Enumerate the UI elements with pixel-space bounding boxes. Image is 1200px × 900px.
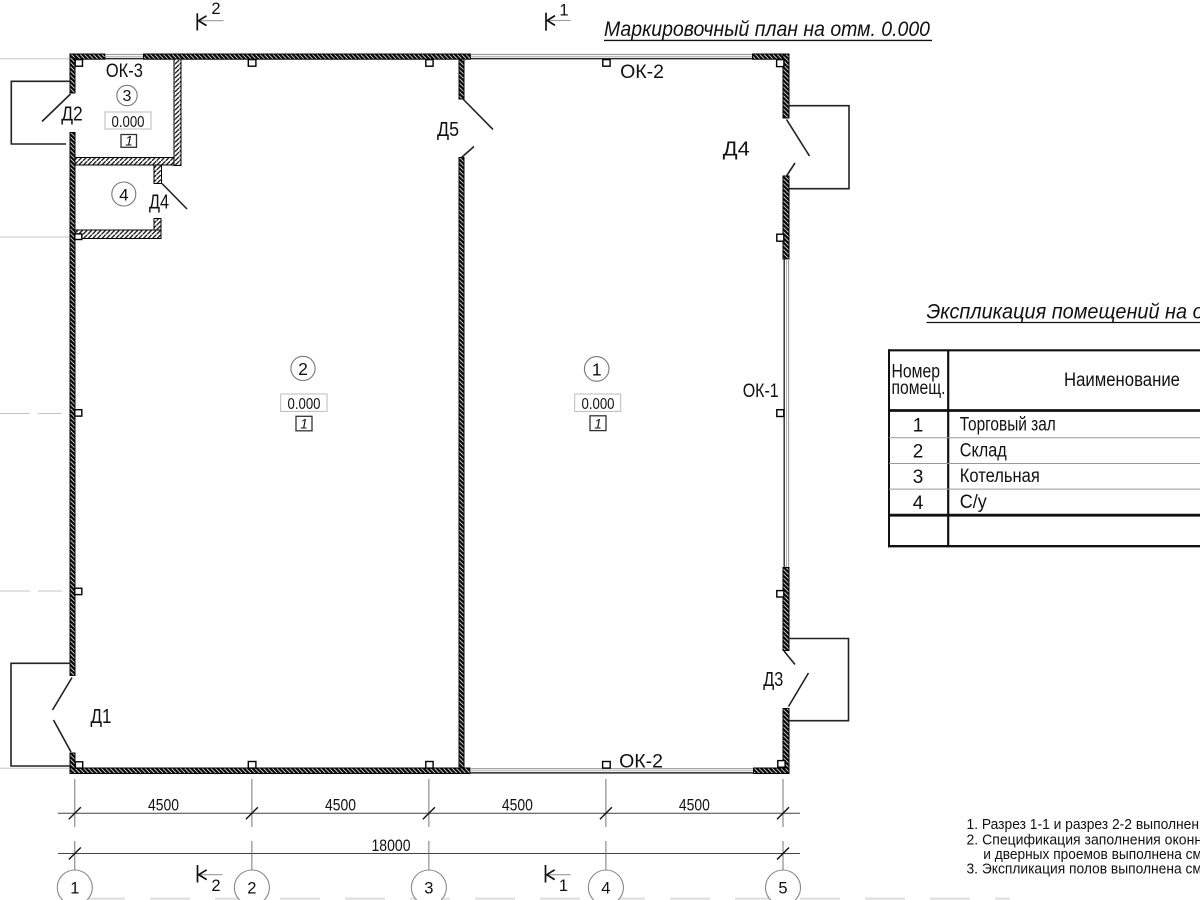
svg-text:4: 4 — [119, 185, 128, 204]
svg-text:Торговый зал: Торговый зал — [960, 415, 1056, 436]
svg-text:4: 4 — [601, 879, 610, 897]
svg-text:1: 1 — [70, 879, 79, 897]
svg-text:0.000: 0.000 — [112, 114, 145, 131]
svg-text:ОК-3: ОК-3 — [106, 60, 143, 82]
svg-text:4: 4 — [913, 493, 924, 514]
svg-text:1: 1 — [125, 133, 133, 148]
svg-text:18000: 18000 — [372, 836, 411, 855]
svg-text:4500: 4500 — [325, 795, 356, 814]
svg-text:1: 1 — [300, 417, 308, 432]
svg-text:С/у: С/у — [960, 492, 987, 513]
svg-text:1: 1 — [592, 359, 602, 379]
svg-text:3: 3 — [424, 879, 433, 897]
svg-text:3: 3 — [913, 467, 924, 488]
svg-text:Д4: Д4 — [723, 138, 750, 161]
svg-text:Экспликация помещений на отм.: Экспликация помещений на отм. 0.000 — [927, 301, 1200, 324]
svg-text:Д3: Д3 — [763, 668, 783, 691]
svg-text:1: 1 — [913, 416, 924, 437]
svg-text:3: 3 — [123, 88, 132, 105]
svg-text:2: 2 — [298, 359, 308, 379]
svg-text:Д4: Д4 — [149, 191, 169, 214]
svg-text:1. Разрез 1-1 и разрез 2-2 вып: 1. Разрез 1-1 и разрез 2-2 выполнены в м — [967, 817, 1200, 833]
svg-text:Наименование: Наименование — [1064, 370, 1180, 391]
svg-text:2. Спецификация заполнения око: 2. Спецификация заполнения оконных пр — [967, 832, 1200, 848]
svg-text:4500: 4500 — [679, 795, 710, 814]
svg-text:0.000: 0.000 — [288, 396, 321, 413]
svg-text:помещ.: помещ. — [892, 378, 946, 399]
svg-text:1: 1 — [559, 877, 568, 895]
svg-text:0.000: 0.000 — [582, 396, 615, 413]
svg-text:5: 5 — [778, 879, 787, 897]
svg-text:и дверных проемов выполнена см: и дверных проемов выполнена см. лист — [983, 847, 1200, 863]
svg-text:4500: 4500 — [148, 795, 179, 814]
svg-text:ОК-2: ОК-2 — [619, 751, 663, 773]
svg-text:4500: 4500 — [502, 795, 533, 814]
svg-text:ОК-1: ОК-1 — [743, 381, 779, 402]
svg-text:ОК-2: ОК-2 — [620, 61, 664, 83]
svg-text:2: 2 — [211, 0, 220, 18]
svg-text:Д5: Д5 — [437, 118, 459, 141]
svg-text:Д2: Д2 — [61, 102, 83, 125]
svg-text:Котельная: Котельная — [960, 466, 1040, 487]
svg-text:1: 1 — [594, 416, 602, 431]
svg-text:2: 2 — [211, 877, 220, 895]
svg-text:Д1: Д1 — [91, 705, 112, 728]
svg-text:Маркировочный план на отм. 0.0: Маркировочный план на отм. 0.000 — [604, 18, 930, 41]
svg-text:Склад: Склад — [960, 440, 1007, 461]
svg-text:2: 2 — [913, 441, 924, 462]
svg-text:2: 2 — [247, 879, 256, 897]
svg-text:3. Экспликация полов выполнена: 3. Экспликация полов выполнена см. лист — [967, 862, 1200, 878]
svg-text:1: 1 — [559, 2, 568, 20]
